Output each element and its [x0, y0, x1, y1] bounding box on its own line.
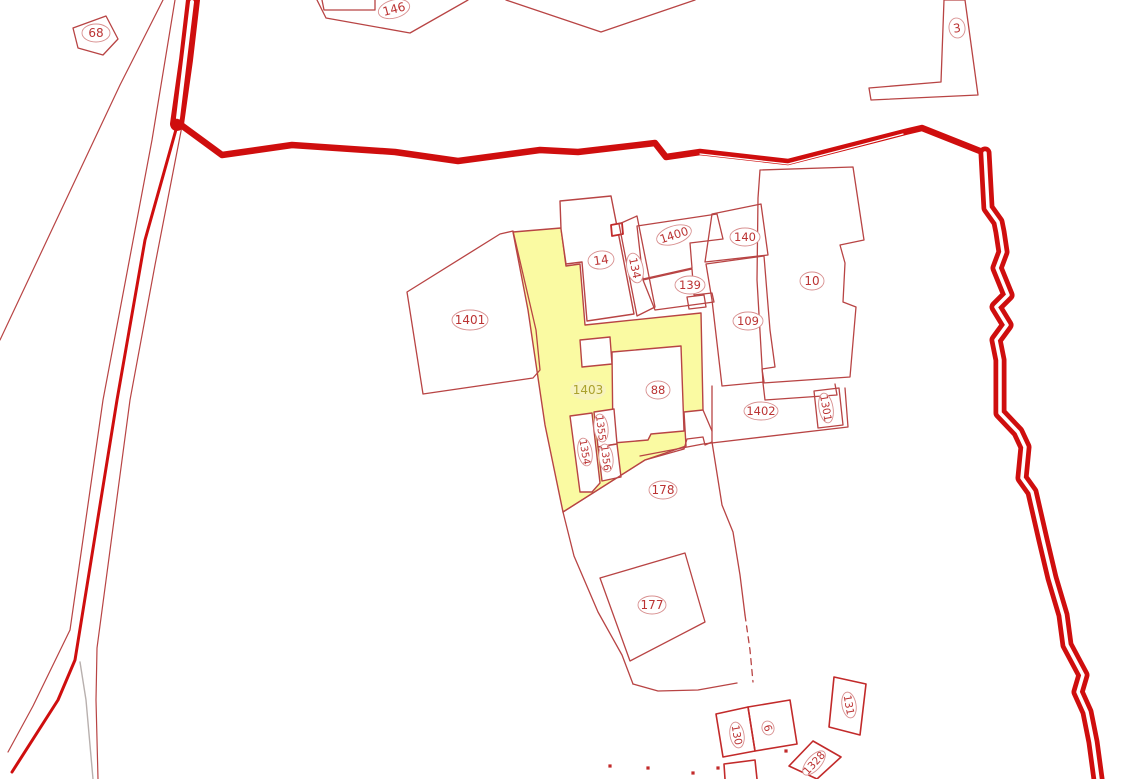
road-centerline [12, 126, 177, 772]
parcel-label-178[interactable]: 178 [649, 481, 677, 499]
parcel-number-text: 10 [804, 274, 819, 288]
parcel-label-68[interactable]: 68 [82, 24, 110, 42]
parcel-label-146[interactable]: 146 [376, 0, 412, 22]
parcel-number-text: 140 [734, 230, 756, 244]
parcel-label-1403[interactable]: 1403 [570, 380, 606, 400]
parcel-number-text: 88 [651, 383, 666, 397]
building-partial-south [724, 760, 757, 779]
parcel-number-text: 68 [88, 26, 103, 40]
survey-point-dot [716, 766, 719, 769]
connector-b [703, 410, 712, 431]
boundary-178-east-dashed [745, 615, 753, 682]
building-14-annex [580, 337, 612, 367]
parcel-label-88[interactable]: 88 [646, 381, 670, 399]
parcel-number-text: 178 [652, 483, 675, 497]
parcel-label-3[interactable]: 3 [948, 17, 967, 39]
survey-point-dot [608, 764, 611, 767]
parcel-geometry-layer [0, 0, 1098, 779]
parcel-label-130[interactable]: 130 [728, 721, 746, 749]
parcel-label-1402[interactable]: 1402 [744, 402, 778, 420]
parcel-label-140[interactable]: 140 [730, 228, 760, 246]
parcel-label-1400[interactable]: 1400 [654, 221, 694, 249]
boundary-178-south [633, 683, 737, 691]
parcel-label-1401[interactable]: 1401 [452, 310, 488, 330]
boundary-178-west [563, 512, 633, 684]
parcel-number-text: 139 [679, 278, 701, 292]
survey-point-dot [784, 749, 787, 752]
parcel-number-text: 177 [641, 598, 664, 612]
parcel-3 [869, 0, 978, 100]
parcel-label-10[interactable]: 10 [800, 272, 824, 290]
parcel-label-6[interactable]: 6 [760, 720, 776, 737]
boundary-thick-top [177, 122, 985, 162]
parcel-v-shape [506, 0, 695, 32]
parcel-number-text: 109 [737, 314, 759, 328]
parcel-label-109[interactable]: 109 [733, 312, 763, 330]
parcel-label-139[interactable]: 139 [675, 276, 705, 294]
parcel-number-text: 131 [841, 694, 856, 716]
parcel-number-text: 1403 [573, 383, 604, 397]
parcel-number-text: 1401 [455, 313, 486, 327]
map-stage: 6814631413414001401391010914011403881355… [0, 0, 1132, 779]
cadastral-map-canvas[interactable]: 6814631413414001401391010914011403881355… [0, 0, 1132, 779]
parcel-label-177[interactable]: 177 [638, 596, 666, 614]
parcel-number-text: 130 [729, 724, 744, 746]
parcel-label-1301[interactable]: 1301 [817, 392, 836, 424]
boundary-right-seam [985, 153, 1098, 779]
survey-point-dot [646, 766, 649, 769]
building-139-small [687, 295, 706, 309]
parcel-number-text: 1402 [746, 404, 775, 418]
survey-dots-layer [608, 749, 787, 774]
survey-point-dot [691, 771, 694, 774]
road-line-left [8, 0, 175, 752]
parcel-146-inner [322, 0, 375, 10]
parcel-labels-layer: 6814631413414001401391010914011403881355… [82, 0, 966, 779]
parcel-number-text: 1301 [817, 394, 833, 422]
road-line-west-branch [0, 0, 163, 340]
parcel-label-131[interactable]: 131 [840, 691, 858, 719]
parcel-number-text: 14 [592, 252, 609, 268]
utility-line-gray [80, 662, 93, 779]
boundary-178-east [712, 442, 745, 615]
